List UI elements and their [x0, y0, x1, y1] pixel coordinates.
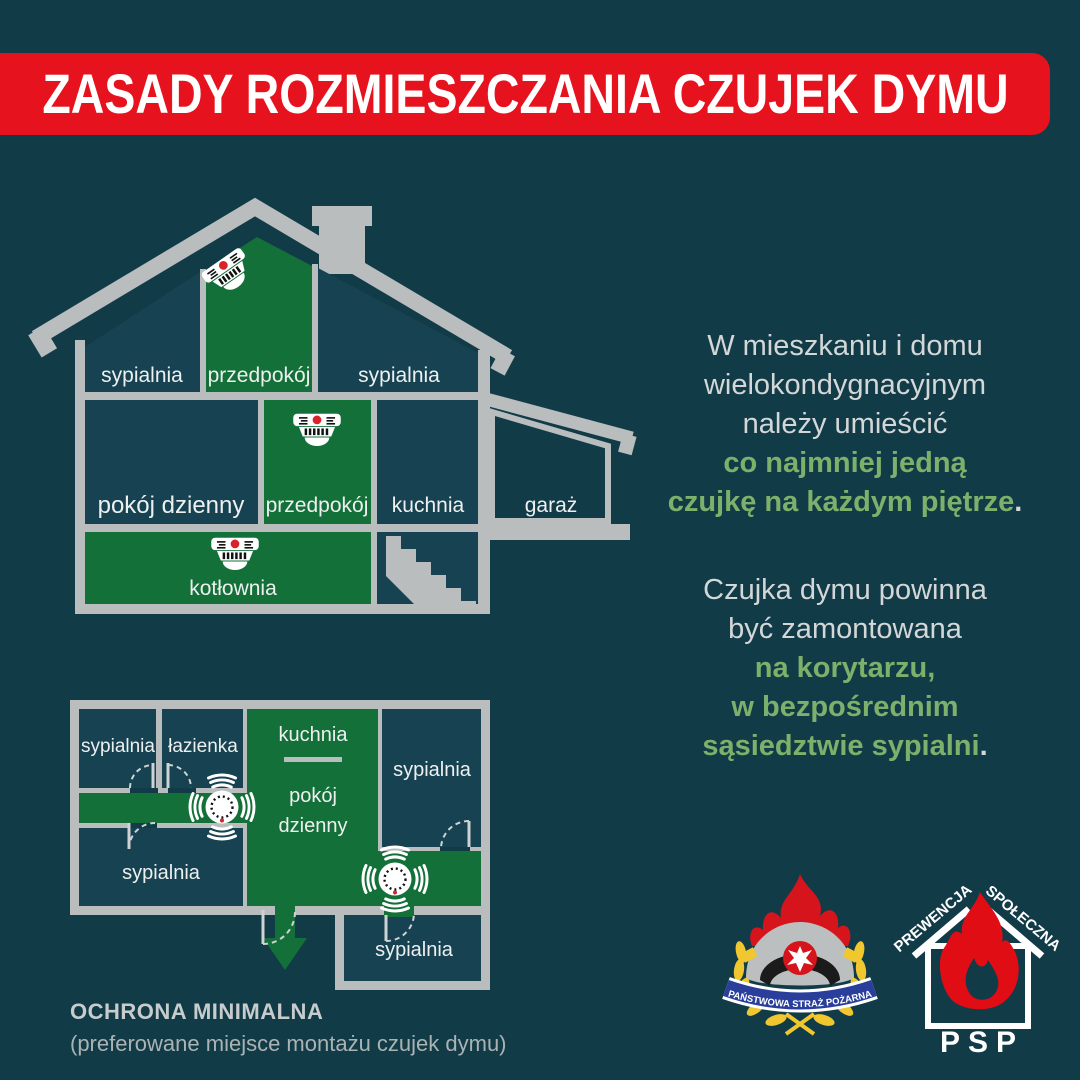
crest-ribbon: PAŃSTWOWA STRAŻ POŻARNA: [720, 988, 880, 1010]
logo-text-psp: PSP: [940, 1026, 1024, 1059]
prewencja-psp-logo: PREWENCJA SPOŁECZNA PSP: [891, 881, 1064, 1059]
logo-strip: PAŃSTWOWA STRAŻ POŻARNA PREWENCJA SPOŁEC…: [0, 0, 1080, 1080]
psp-crest-logo: PAŃSTWOWA STRAŻ POŻARNA: [720, 874, 880, 1034]
infographic-canvas: ZASADY ROZMIESZCZANIA CZUJEK DYMU: [0, 0, 1080, 1080]
